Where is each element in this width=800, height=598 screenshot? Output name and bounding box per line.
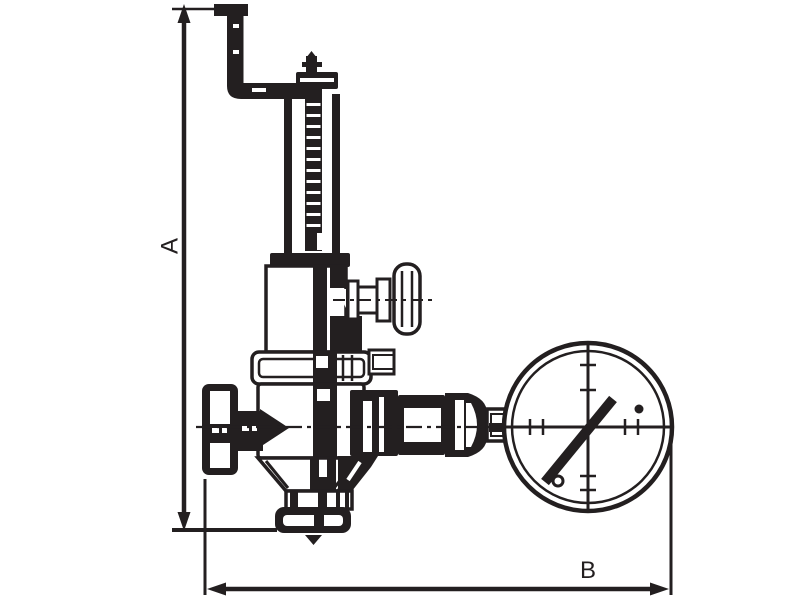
valve-stem: [313, 266, 327, 352]
valve-body: [258, 384, 398, 458]
dim-b-arrow-left: [207, 583, 226, 596]
dim-b-arrow-right: [650, 583, 669, 596]
housing-wall-left: [284, 94, 292, 254]
spindle-nut: [317, 233, 332, 250]
dim-a-label: A: [157, 238, 184, 254]
dim-a-arrow-up: [178, 4, 191, 23]
upper-body-flange: [252, 350, 394, 384]
housing-wall-right: [332, 94, 340, 254]
pressure-gauge: [504, 343, 672, 511]
gauge-connection: [398, 393, 507, 457]
outlet-tip: [305, 535, 322, 545]
dim-b-label: B: [580, 557, 596, 584]
inlet-stem: [238, 411, 263, 451]
outlet-boss: [350, 390, 398, 456]
needle-stop-pin: [553, 476, 563, 486]
dial-marker-dot: [635, 405, 644, 414]
valve-technical-drawing: A: [0, 0, 800, 598]
inlet-cap: [202, 384, 263, 475]
